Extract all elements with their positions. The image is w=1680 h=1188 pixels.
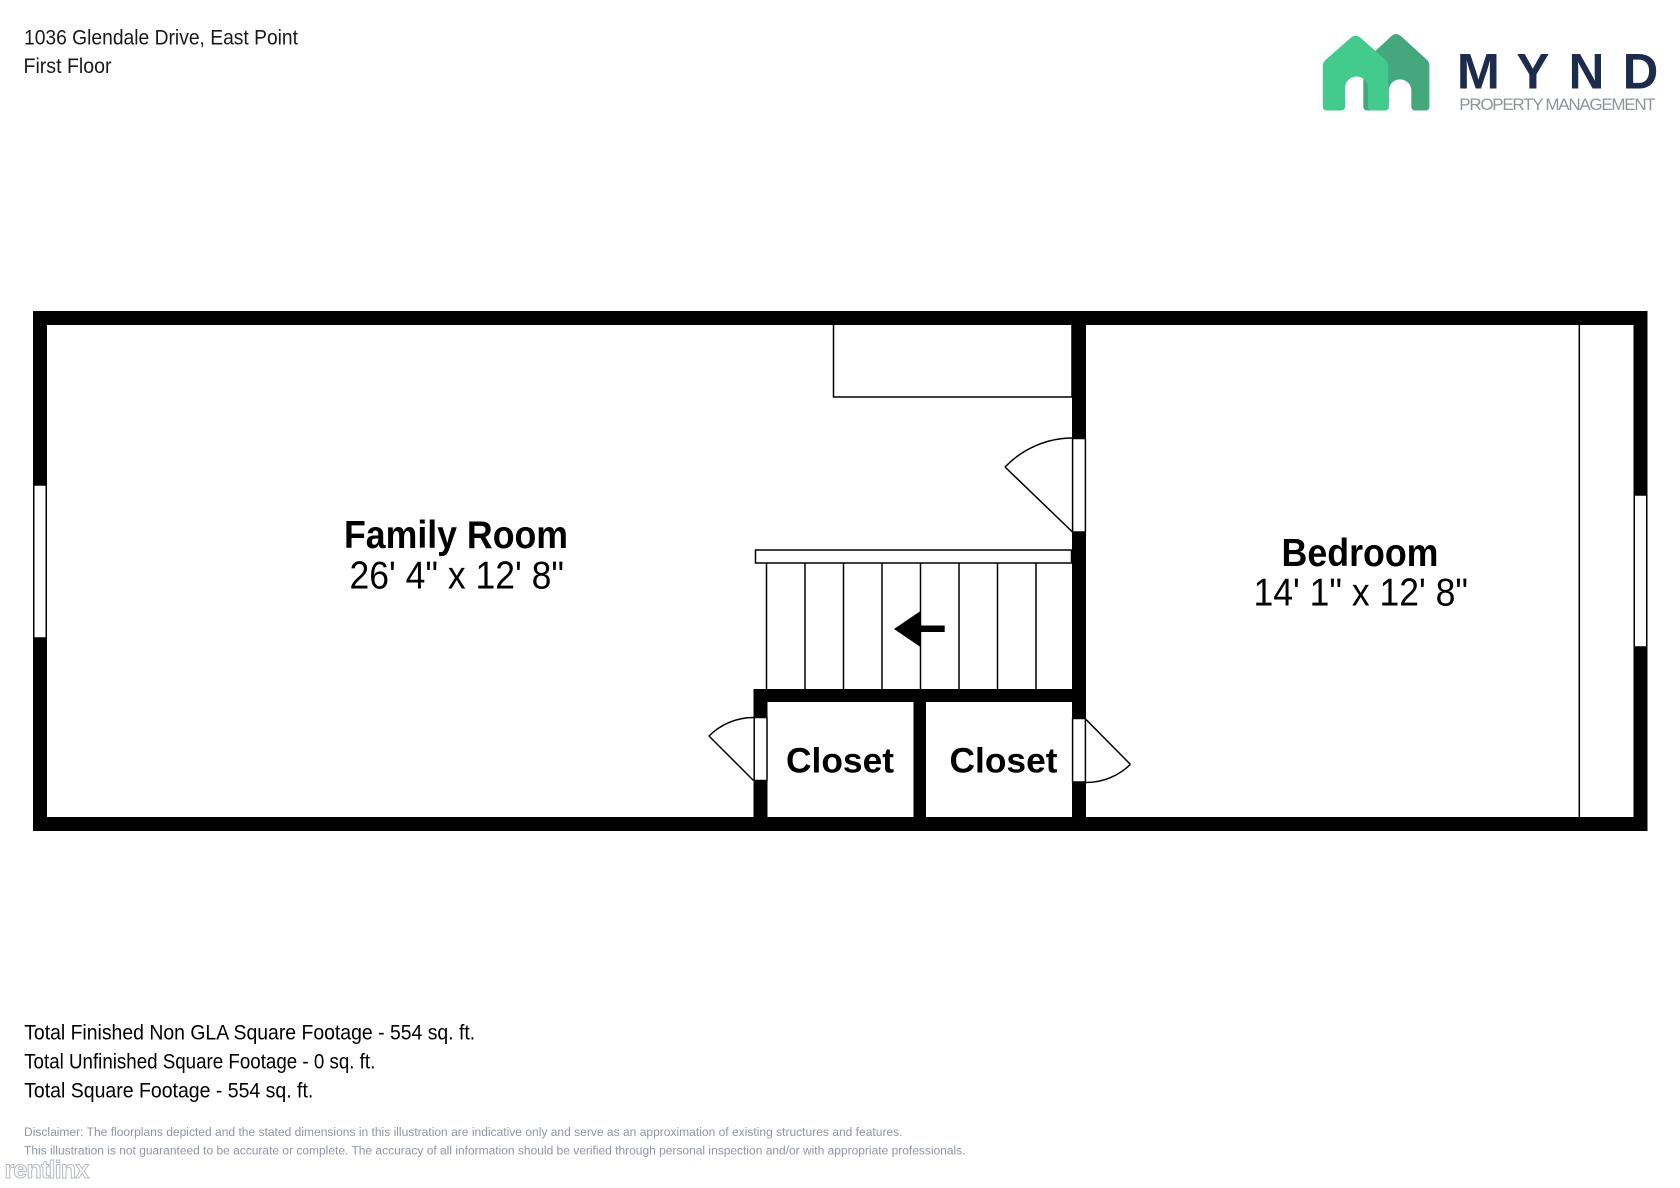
svg-text:14' 1" x 12' 8": 14' 1" x 12' 8" bbox=[1254, 572, 1469, 615]
svg-text:Disclaimer: The floorplans dep: Disclaimer: The floorplans depicted and … bbox=[24, 1125, 903, 1139]
svg-text:1036 Glendale Drive, East Poin: 1036 Glendale Drive, East Point bbox=[24, 26, 298, 50]
svg-text:PROPERTY MANAGEMENT: PROPERTY MANAGEMENT bbox=[1459, 95, 1655, 114]
svg-text:rentlinx: rentlinx bbox=[5, 1156, 90, 1184]
svg-text:D: D bbox=[1623, 43, 1659, 100]
svg-text:This illustration is not guara: This illustration is not guaranteed to b… bbox=[24, 1144, 966, 1158]
svg-text:M: M bbox=[1457, 43, 1500, 100]
svg-text:N: N bbox=[1569, 43, 1605, 100]
svg-text:Total Finished Non GLA Square: Total Finished Non GLA Square Footage - … bbox=[24, 1021, 475, 1045]
svg-text:Closet: Closet bbox=[950, 741, 1058, 780]
svg-text:Total Square Footage - 554 sq.: Total Square Footage - 554 sq. ft. bbox=[24, 1078, 313, 1102]
svg-text:Total Unfinished Square Footag: Total Unfinished Square Footage - 0 sq. … bbox=[24, 1049, 375, 1073]
svg-text:Closet: Closet bbox=[786, 741, 894, 780]
svg-text:Family Room: Family Room bbox=[344, 514, 568, 557]
svg-text:Y: Y bbox=[1516, 43, 1549, 100]
svg-text:Bedroom: Bedroom bbox=[1282, 532, 1439, 575]
svg-text:26' 4" x 12' 8": 26' 4" x 12' 8" bbox=[350, 555, 565, 598]
svg-text:First Floor: First Floor bbox=[24, 54, 112, 78]
